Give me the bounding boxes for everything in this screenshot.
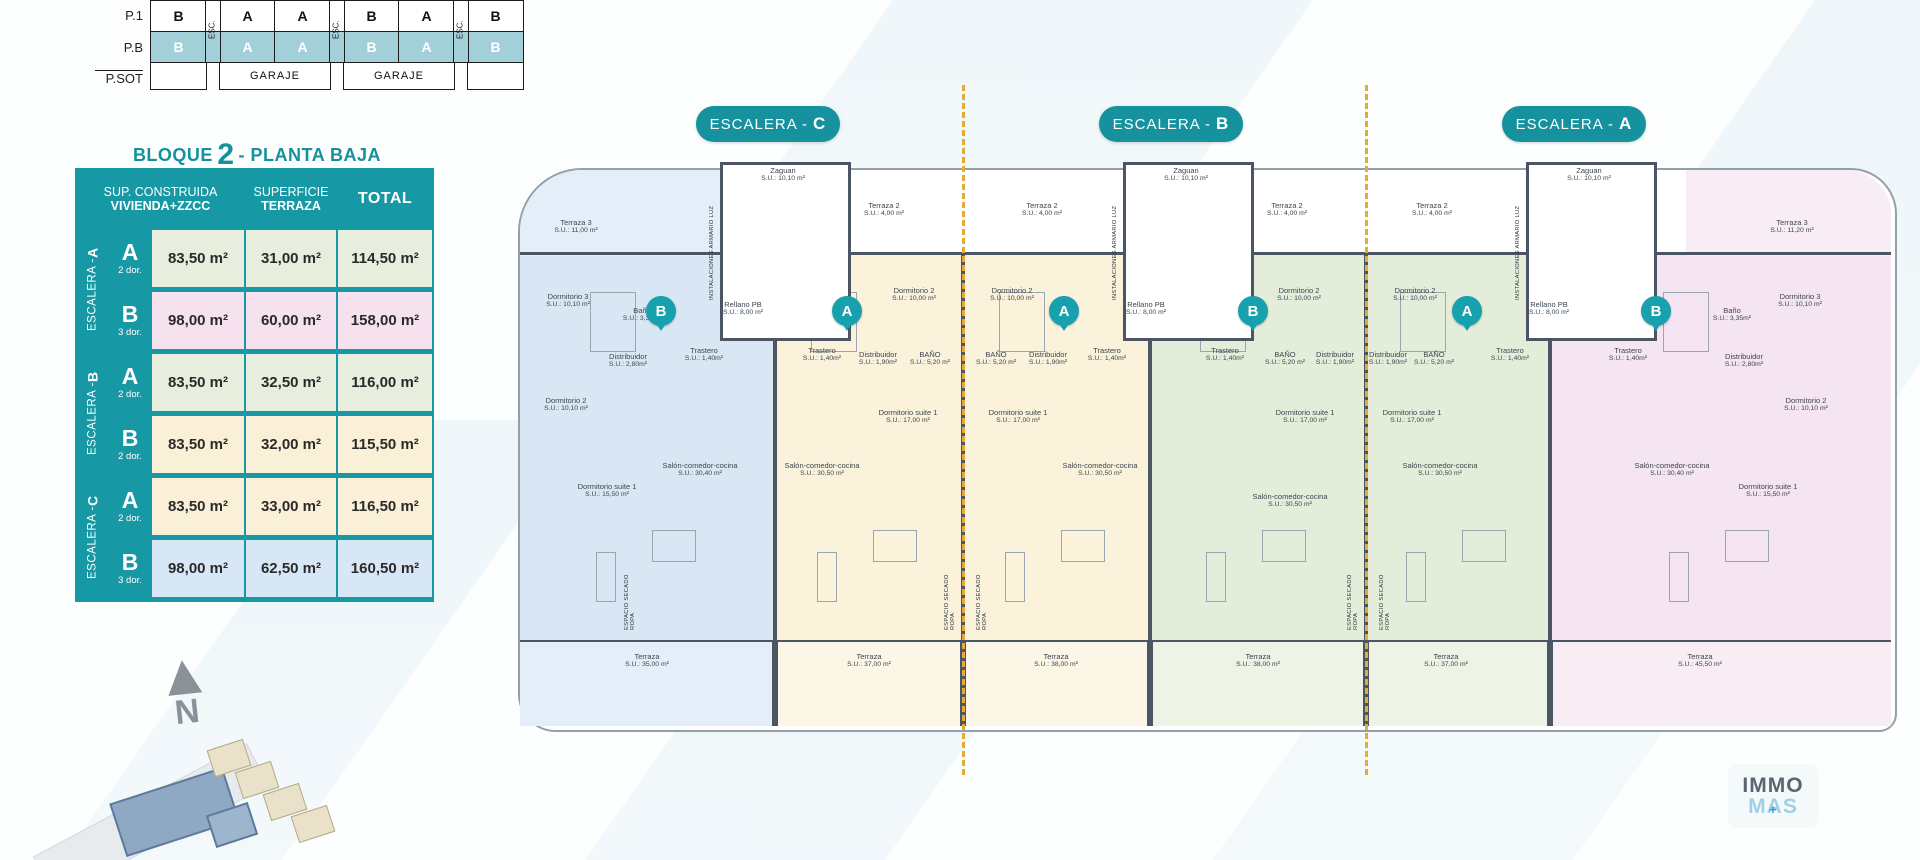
portal-badge-b: B — [646, 296, 676, 326]
stack-psot-empty — [467, 62, 524, 90]
secado-ropa-label: ESPACIO SECADO ROPA — [976, 560, 988, 630]
room-label: Dormitorio suite 1S.U.: 15,50 m² — [564, 482, 650, 500]
stack-cell-p1: A — [274, 0, 331, 32]
cell-total: 114,50 m² — [338, 230, 432, 287]
terrace-label: TerrazaS.U.: 37,00 m² — [826, 652, 912, 670]
zone-divider-dashed-line — [962, 85, 965, 775]
portal-badge-a: A — [1452, 296, 1482, 326]
cell-total: 116,00 m² — [338, 354, 432, 411]
room-label: Salón-comedor-cocinaS.U.: 30,50 m² — [779, 461, 865, 479]
portal-badge-a: A — [1049, 296, 1079, 326]
stack-cell-pb: A — [219, 31, 276, 63]
cell-construida: 98,00 m² — [152, 540, 244, 597]
room-label: TrasteroS.U.: 1,40m² — [1585, 346, 1671, 364]
cell-terraza: 32,00 m² — [246, 416, 336, 473]
escalera-group-label: ESCALERA - B — [77, 354, 108, 473]
secado-ropa-label: ESPACIO SECADO ROPA — [1347, 560, 1359, 630]
compass-arrow-icon — [165, 658, 202, 695]
furniture-sofa — [817, 552, 837, 602]
room-label: Salón-comedor-cocinaS.U.: 30,50 m² — [1057, 461, 1143, 479]
room-label: Dormitorio 2S.U.: 10,00 m² — [871, 286, 957, 304]
furniture-sofa — [596, 552, 616, 602]
site-location-map — [60, 742, 350, 860]
cell-terraza: 32,50 m² — [246, 354, 336, 411]
furniture-table — [873, 530, 917, 562]
title-planta: - PLANTA BAJA — [239, 145, 382, 165]
stack-cell-p1: B — [467, 0, 524, 32]
furniture-sofa — [1206, 552, 1226, 602]
cell-terraza: 60,00 m² — [246, 292, 336, 349]
room-label: Dormitorio 2S.U.: 10,10 m² — [523, 396, 609, 414]
apartment-type-chip: B3 dor. — [110, 292, 150, 349]
wall-terrace-stub — [1547, 642, 1553, 726]
cell-construida: 83,50 m² — [152, 416, 244, 473]
stack-psot-empty — [150, 62, 207, 90]
terrace-label: TerrazaS.U.: 38,00 m² — [1013, 652, 1099, 670]
furniture-table — [1725, 530, 1769, 562]
stack-cell-p1: A — [398, 0, 455, 32]
room-label: TrasteroS.U.: 1,40m² — [1182, 346, 1268, 364]
room-label: Dormitorio 2S.U.: 10,00 m² — [1372, 286, 1458, 304]
secado-ropa-label: ESPACIO SECADO ROPA — [624, 560, 636, 630]
escalera-pill-b: ESCALERA - B — [1099, 106, 1243, 142]
core-rellano-label: Rellano PBS.U.: 8,00 m² — [700, 300, 786, 318]
room-label: Dormitorio suite 1S.U.: 17,00 m² — [865, 408, 951, 426]
apartment-type-chip: B2 dor. — [110, 416, 150, 473]
room-label: Salón-comedor-cocinaS.U.: 30,50 m² — [1247, 492, 1333, 510]
wall-terrace-stub — [1147, 642, 1153, 726]
room-label: TrasteroS.U.: 1,40m² — [661, 346, 747, 364]
secado-ropa-label: ESPACIO SECADO ROPA — [1379, 560, 1391, 630]
title-block-number: 2 — [217, 138, 234, 171]
apartment-type-chip: A2 dor. — [110, 230, 150, 287]
apartment-type-chip: A2 dor. — [110, 478, 150, 535]
instalaciones-label: INSTALACIONES ARMARIO LUZ — [709, 180, 715, 300]
wall-terrace-line — [520, 640, 1891, 642]
logo-mas-text: MAS+ — [1748, 796, 1798, 817]
terrace-label: TerrazaS.U.: 38,00 m² — [1215, 652, 1301, 670]
room-label: DistribuidorS.U.: 1,90m² — [1345, 350, 1431, 368]
room-label: DistribuidorS.U.: 2,80m² — [585, 352, 671, 370]
compass-letter: N — [151, 690, 225, 735]
stack-garaje: GARAJE — [343, 62, 455, 90]
terrace-corner-right — [1686, 170, 1891, 256]
core-zaguan-label: ZaguanS.U.: 10,10 m² — [740, 166, 826, 184]
room-label: Dormitorio suite 1S.U.: 15,50 m² — [1725, 482, 1811, 500]
instalaciones-label: INSTALACIONES ARMARIO LUZ — [1515, 180, 1521, 300]
room-label: BañoS.U.: 3,35m² — [1689, 306, 1775, 324]
portal-badge-b: B — [1641, 296, 1671, 326]
stack-row-label: P.SOT — [95, 70, 143, 86]
stack-cell-pb: B — [150, 31, 207, 63]
room-label: Terraza 3S.U.: 11,20 m² — [1749, 218, 1835, 236]
surface-summary-table: SUP. CONSTRUIDAVIVIENDA+ZZCCSUPERFICIETE… — [77, 170, 432, 600]
table-header-total: TOTAL — [338, 170, 432, 228]
portal-badge-b: B — [1238, 296, 1268, 326]
escalera-group-label: ESCALERA - A — [77, 230, 108, 349]
core-rellano-label: Rellano PBS.U.: 8,00 m² — [1103, 300, 1189, 318]
cell-total: 160,50 m² — [338, 540, 432, 597]
furniture-table — [1462, 530, 1506, 562]
room-label: Dormitorio suite 1S.U.: 17,00 m² — [975, 408, 1061, 426]
page-title: BLOQUE 2 - PLANTA BAJA — [77, 138, 437, 172]
stack-cell-pb: A — [398, 31, 455, 63]
zone-divider-dashed-line — [1365, 85, 1368, 775]
secado-ropa-label: ESPACIO SECADO ROPA — [944, 560, 956, 630]
room-label: Salón-comedor-cocinaS.U.: 30,50 m² — [1397, 461, 1483, 479]
core-zaguan-label: ZaguanS.U.: 10,10 m² — [1143, 166, 1229, 184]
room-label: Terraza 2S.U.: 4,00 m² — [999, 201, 1085, 219]
furniture-table — [1262, 530, 1306, 562]
stack-cell-pb: B — [343, 31, 400, 63]
portal-badge-a: A — [832, 296, 862, 326]
stack-row-label: P.1 — [95, 8, 143, 23]
floorplan-brochure-page: P.1P.BP.SOTBAABABBAABABESC.ESC.ESC.GARAJ… — [0, 0, 1920, 860]
cell-terraza: 62,50 m² — [246, 540, 336, 597]
cell-total: 158,00 m² — [338, 292, 432, 349]
room-label: Dormitorio 2S.U.: 10,10 m² — [1763, 396, 1849, 414]
terrace-corner-left — [520, 170, 720, 256]
cell-construida: 98,00 m² — [152, 292, 244, 349]
furniture-sofa — [1005, 552, 1025, 602]
stack-cell-p1: B — [150, 0, 207, 32]
terrace-label: TerrazaS.U.: 37,00 m² — [1403, 652, 1489, 670]
stack-cell-p1: A — [219, 0, 276, 32]
room-label: TrasteroS.U.: 1,40m² — [1467, 346, 1553, 364]
terrace-label: TerrazaS.U.: 45,50 m² — [1657, 652, 1743, 670]
cell-construida: 83,50 m² — [152, 230, 244, 287]
title-bloque: BLOQUE — [133, 145, 213, 165]
apartment-type-chip: A2 dor. — [110, 354, 150, 411]
room-label: Terraza 2S.U.: 4,00 m² — [1389, 201, 1475, 219]
stack-esc-label: ESC. — [329, 2, 343, 58]
apartment-type-chip: B3 dor. — [110, 540, 150, 597]
furniture-table — [652, 530, 696, 562]
instalaciones-label: INSTALACIONES ARMARIO LUZ — [1112, 180, 1118, 300]
furniture-sofa — [1406, 552, 1426, 602]
room-label: DistribuidorS.U.: 2,80m² — [1701, 352, 1787, 370]
cell-construida: 83,50 m² — [152, 478, 244, 535]
stack-cell-pb: B — [467, 31, 524, 63]
stack-garaje: GARAJE — [219, 62, 331, 90]
core-rellano-label: Rellano PBS.U.: 8,00 m² — [1506, 300, 1592, 318]
room-label: Dormitorio 2S.U.: 10,00 m² — [969, 286, 1055, 304]
room-label: TrasteroS.U.: 1,40m² — [1064, 346, 1150, 364]
wall-terrace-stub — [772, 642, 778, 726]
room-label: Dormitorio 2S.U.: 10,00 m² — [1256, 286, 1342, 304]
logo-immo-text: IMMO — [1742, 775, 1803, 796]
table-header-terraza: SUPERFICIETERRAZA — [246, 170, 336, 228]
stack-esc-label: ESC. — [205, 2, 219, 58]
cell-total: 116,50 m² — [338, 478, 432, 535]
immomas-logo: IMMO MAS+ — [1728, 764, 1818, 828]
terrace-label: TerrazaS.U.: 35,00 m² — [604, 652, 690, 670]
room-label: Dormitorio suite 1S.U.: 17,00 m² — [1369, 408, 1455, 426]
room-label: Terraza 3S.U.: 11,00 m² — [533, 218, 619, 236]
table-header-construida: SUP. CONSTRUIDAVIVIENDA+ZZCC — [77, 170, 244, 228]
furniture-table — [1061, 530, 1105, 562]
room-label: Terraza 2S.U.: 4,00 m² — [841, 201, 927, 219]
core-zaguan-label: ZaguanS.U.: 10,10 m² — [1546, 166, 1632, 184]
escalera-group-label: ESCALERA - C — [77, 478, 108, 597]
escalera-pill-c: ESCALERA - C — [696, 106, 840, 142]
stack-cell-pb: A — [274, 31, 331, 63]
furniture-sofa — [1669, 552, 1689, 602]
escalera-pill-a: ESCALERA - A — [1502, 106, 1646, 142]
cell-terraza: 31,00 m² — [246, 230, 336, 287]
cell-terraza: 33,00 m² — [246, 478, 336, 535]
room-label: Dormitorio suite 1S.U.: 17,00 m² — [1262, 408, 1348, 426]
stack-row-label: P.B — [95, 40, 143, 55]
room-label: Salón-comedor-cocinaS.U.: 30,40 m² — [657, 461, 743, 479]
logo-plus-icon: + — [1769, 803, 1778, 816]
cell-total: 115,50 m² — [338, 416, 432, 473]
room-label: Salón-comedor-cocinaS.U.: 30,40 m² — [1629, 461, 1715, 479]
stack-cell-p1: B — [343, 0, 400, 32]
room-label: Terraza 2S.U.: 4,00 m² — [1244, 201, 1330, 219]
stack-esc-label: ESC. — [453, 2, 467, 58]
cell-construida: 83,50 m² — [152, 354, 244, 411]
